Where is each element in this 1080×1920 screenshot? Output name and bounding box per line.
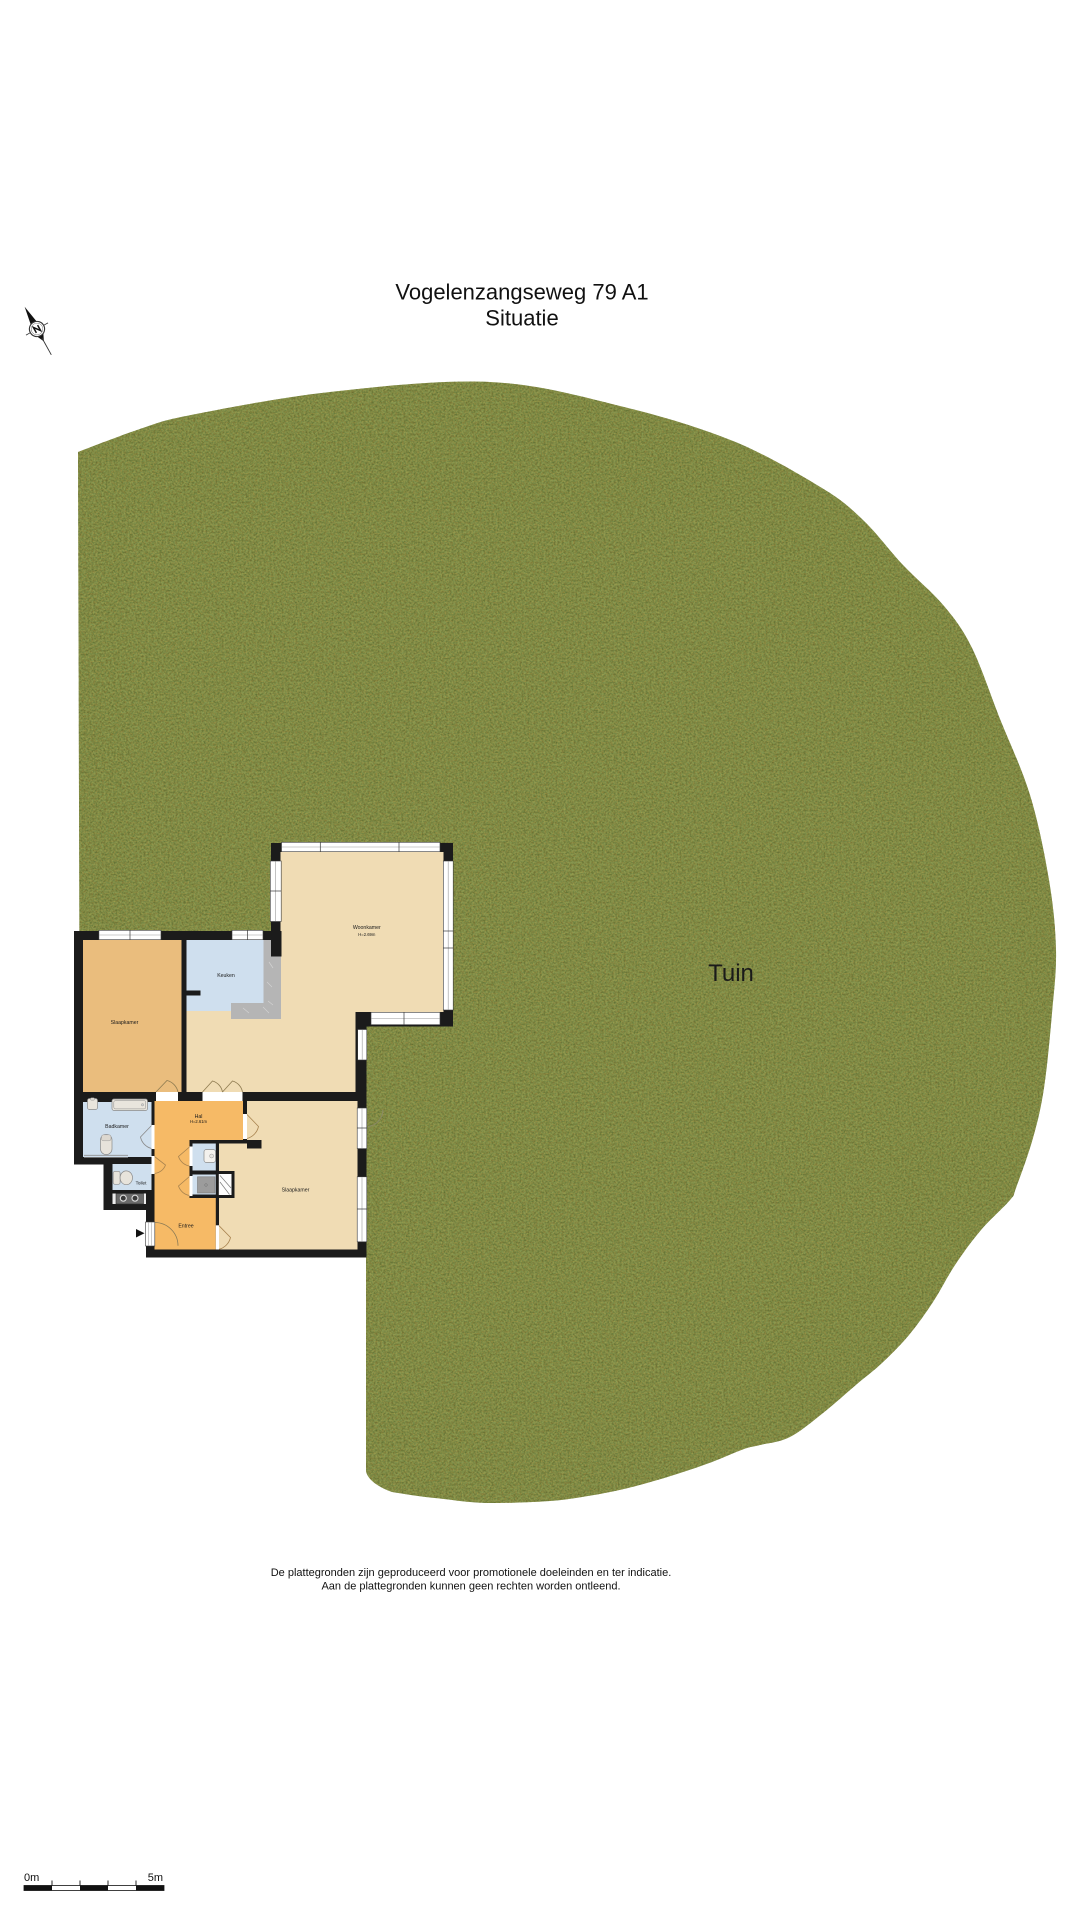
svg-text:Slaapkamer: Slaapkamer: [282, 1188, 310, 1194]
svg-text:0m: 0m: [24, 1872, 39, 1884]
svg-text:Vogelenzangseweg 79 A1: Vogelenzangseweg 79 A1: [395, 280, 648, 305]
svg-text:H=2.69m: H=2.69m: [358, 932, 376, 937]
svg-text:Slaapkamer: Slaapkamer: [111, 1020, 139, 1026]
svg-text:Tuin: Tuin: [708, 960, 754, 987]
svg-text:Aan de plattegronden kunnen ge: Aan de plattegronden kunnen geen rechten…: [321, 1581, 620, 1593]
svg-text:H=2.61m: H=2.61m: [190, 1119, 208, 1124]
svg-text:Keuken: Keuken: [217, 973, 235, 979]
svg-text:Situatie: Situatie: [485, 306, 558, 331]
svg-text:Badkamer: Badkamer: [105, 1124, 129, 1130]
svg-text:Toilet: Toilet: [136, 1181, 147, 1186]
svg-text:5m: 5m: [148, 1872, 163, 1884]
svg-text:Entree: Entree: [178, 1224, 193, 1230]
svg-text:Woonkamer: Woonkamer: [353, 925, 381, 931]
svg-text:De plattegronden zijn geproduc: De plattegronden zijn geproduceerd voor …: [271, 1567, 672, 1579]
